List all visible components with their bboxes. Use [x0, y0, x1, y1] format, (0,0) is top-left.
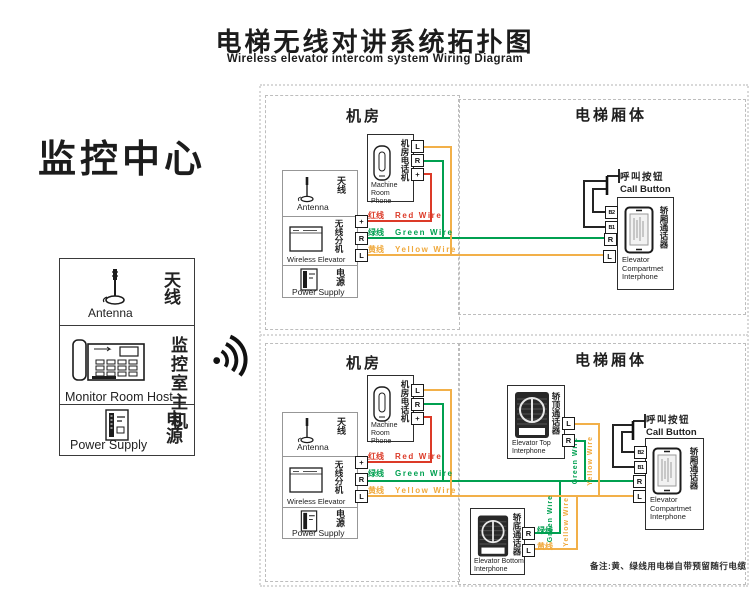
machine-room-phone-label-zh: 机房电话机: [400, 380, 410, 423]
terminal-l: L: [603, 250, 616, 263]
wireless-extension-label-zh: 无线分机: [334, 460, 344, 494]
system2-device-stack: 天线 Antenna 无线分机 Wireless Elevator: [282, 412, 358, 539]
monitor-antenna-label-en: Antenna: [88, 307, 133, 321]
call-wire-b2: [592, 188, 594, 213]
green-wire-label: 绿线Green Wire: [368, 227, 454, 238]
wireless-signal-icon: [208, 330, 254, 382]
green-wire: [584, 440, 586, 482]
system2-elevator-car-header: 电梯厢体: [575, 349, 647, 370]
antenna-label-en: Antenna: [297, 203, 329, 213]
antenna-label-zh: 天线: [335, 176, 346, 194]
call-wire-b1: [583, 226, 605, 228]
dotted-frame-top: [260, 84, 748, 86]
terminal-l: L: [355, 249, 368, 262]
terminal-plus: +: [355, 215, 368, 228]
wiring-diagram-canvas: 电梯无线对讲系统拓扑图 Wireless elevator intercom s…: [0, 0, 750, 589]
terminal-l: L: [355, 490, 368, 503]
power-label-zh: 电源: [334, 268, 345, 286]
compartment-interphone-icon: [624, 206, 654, 254]
call-button-label-en: Call Button: [620, 185, 671, 196]
monitor-power-label-en: Power Supply: [70, 438, 147, 452]
yellow-wire: [422, 389, 450, 391]
green-wire-label-zh: 绿线: [368, 469, 384, 478]
dotted-frame-right: [747, 86, 749, 585]
terminal-l: L: [411, 384, 424, 397]
green-wire-short-label: 绿线: [537, 525, 553, 536]
dotted-frame-left: [259, 86, 261, 585]
elevator-bottom-interphone: 轿底通话器 Elevator Bottom Interphone: [470, 508, 525, 575]
monitor-host-phone-icon: [70, 334, 148, 386]
system2-machine-room-phone: 机房电话机 Machine Room Phone: [367, 375, 414, 442]
machine-room-phone-label-en: Machine Room Phone: [371, 422, 411, 446]
dotted-frame-bottom: [260, 585, 748, 587]
page-subtitle: Wireless elevator intercom system Wiring…: [0, 53, 750, 65]
call-button-icon: [600, 164, 626, 198]
terminal-r: R: [604, 233, 617, 246]
elevator-bottom-interphone-label-zh: 轿底通话器: [512, 513, 523, 556]
antenna-icon: [100, 266, 130, 310]
red-wire-label-en: Red Wire: [395, 452, 442, 461]
terminal-r: R: [522, 527, 535, 540]
yellow-wire-label: 黄线Yellow Wire: [368, 485, 457, 496]
system2-antenna-cell: 天线 Antenna: [283, 413, 357, 457]
power-label-en: Power Supply: [292, 529, 344, 539]
call-wire-b2: [621, 431, 623, 453]
yellow-wire-label: 黄线Yellow Wire: [368, 244, 457, 255]
system1-elevator-car-frame: [458, 99, 746, 315]
green-wire-label-zh: 绿线: [368, 228, 384, 237]
green-wire: [422, 160, 442, 162]
yellow-wire: [450, 389, 452, 497]
terminal-r: R: [355, 232, 368, 245]
system1-antenna-cell: 天线 Antenna: [283, 171, 357, 217]
monitor-antenna-cell: 天线 Antenna: [60, 259, 194, 326]
yellow-wire-vertical-label: Yellow Wire: [563, 497, 570, 547]
system2-compartment-interphone: 轿厢通话器 Elevator Compartmet Interphone: [645, 438, 704, 530]
elevator-top-interphone-label-zh: 轿顶通话器: [550, 392, 561, 435]
yellow-wire: [573, 423, 598, 425]
yellow-wire-vertical-label: Yellow Wire: [587, 436, 594, 486]
yellow-wire-label-zh: 黄线: [368, 486, 384, 495]
red-wire-label: 红线Red Wire: [368, 210, 442, 221]
system1-device-stack: 天线 Antenna 无线分机 Wireless Elevator: [282, 170, 358, 298]
monitor-host-label-en: Monitor Room Host: [65, 390, 173, 404]
elevator-top-interphone: 轿顶通话器 Elevator Top Interphone: [507, 385, 565, 459]
red-wire-label: 红线Red Wire: [368, 451, 442, 462]
monitor-center-heading: 监控中心: [38, 128, 206, 183]
diagram-note: 备注:黄、绿线用电梯自带预留随行电缆: [590, 560, 746, 572]
power-label-en: Power Supply: [292, 288, 344, 298]
yellow-wire-short-label: 黄线: [537, 541, 553, 552]
machine-room-phone-label-en: Machine Room Phone: [371, 182, 411, 206]
green-wire-label-en: Green Wire: [395, 469, 454, 478]
green-wire: [559, 480, 561, 534]
wireless-extension-label-en: Wireless Elevator: [287, 256, 345, 265]
red-wire-label-zh: 红线: [368, 211, 384, 220]
monitor-host-cell: 监控室主机 Monitor Room Host: [60, 326, 194, 405]
terminal-l: L: [522, 544, 535, 557]
elevator-bottom-interphone-label-en: Elevator Bottom Interphone: [474, 558, 524, 574]
power-label-zh: 电源: [334, 509, 345, 527]
green-wire-label-en: Green Wire: [395, 228, 454, 237]
call-wire-b1: [612, 466, 636, 468]
yellow-wire: [576, 495, 578, 550]
system1-power-cell: 电源 Power Supply: [283, 266, 357, 299]
pit-speaker-icon: [477, 514, 509, 558]
elevator-top-interphone-label-en: Elevator Top Interphone: [512, 440, 558, 456]
machine-room-phone-label-zh: 机房电话机: [400, 139, 410, 182]
call-wire-b1: [612, 424, 614, 468]
monitor-host-label-zh: 监控室主机: [166, 336, 188, 398]
yellow-wire-label-en: Yellow Wire: [395, 486, 457, 495]
green-wire: [366, 480, 635, 482]
terminal-l: L: [411, 140, 424, 153]
wireless-extension-icon: [289, 226, 323, 252]
terminal-b2: B2: [605, 206, 618, 219]
system1-elevator-car-header: 电梯厢体: [575, 104, 647, 125]
terminal-plus: +: [355, 456, 368, 469]
handset-icon: [372, 386, 392, 424]
compartment-interphone-icon: [652, 447, 682, 495]
terminal-r: R: [355, 473, 368, 486]
handset-icon: [372, 145, 392, 183]
system1-compartment-interphone: 轿厢通话器 Elevator Compartmet Interphone: [617, 197, 674, 290]
terminal-b1: B1: [634, 461, 647, 474]
system1-machine-room-header: 机房: [346, 105, 382, 126]
system2-wireless-cell: 无线分机 Wireless Elevator: [283, 457, 357, 508]
system1-machine-room-phone: 机房电话机 Machine Room Phone: [367, 134, 414, 202]
call-button-label-zh: 呼叫按钮: [646, 416, 690, 427]
system2-machine-room-header: 机房: [346, 352, 382, 373]
yellow-wire: [422, 146, 450, 148]
compartment-interphone-label-zh: 轿厢通话器: [658, 206, 669, 249]
call-button-label-zh: 呼叫按钮: [620, 173, 664, 184]
call-wire-b2: [592, 211, 605, 213]
power-supply-icon: [105, 409, 129, 441]
terminal-b2: B2: [634, 446, 647, 459]
red-wire-label-en: Red Wire: [395, 211, 442, 220]
monitor-power-label-zh: 电源: [162, 410, 182, 444]
dotted-frame-middle: [260, 334, 748, 336]
terminal-plus: +: [411, 412, 424, 425]
yellow-wire: [598, 423, 600, 497]
system2-power-cell: 电源 Power Supply: [283, 508, 357, 540]
green-wire: [422, 403, 442, 405]
system1-wireless-cell: 无线分机 Wireless Elevator: [283, 217, 357, 266]
yellow-wire: [450, 146, 452, 256]
call-button-icon: [626, 409, 652, 443]
terminal-r: R: [562, 434, 575, 447]
wireless-extension-icon: [289, 467, 323, 493]
monitor-power-cell: 电源 Power Supply: [60, 405, 194, 454]
terminal-r: R: [411, 398, 424, 411]
monitor-antenna-label-zh: 天线: [160, 271, 180, 305]
compartment-interphone-label-en: Elevator Compartmet Interphone: [650, 496, 702, 522]
compartment-interphone-label-zh: 轿厢通话器: [688, 447, 699, 490]
terminal-plus: +: [411, 168, 424, 181]
compartment-interphone-label-en: Elevator Compartmet Interphone: [622, 256, 672, 282]
antenna-icon: [296, 175, 318, 205]
yellow-wire-label-zh: 黄线: [368, 245, 384, 254]
wireless-extension-label-en: Wireless Elevator: [287, 498, 345, 507]
roof-speaker-icon: [514, 391, 550, 439]
terminal-r: R: [411, 154, 424, 167]
terminal-l: L: [562, 417, 575, 430]
terminal-l: L: [633, 490, 646, 503]
call-wire-b1: [583, 180, 585, 228]
terminal-r: R: [633, 475, 646, 488]
wireless-extension-label-zh: 无线分机: [334, 219, 344, 253]
antenna-label-zh: 天线: [335, 417, 346, 435]
antenna-label-en: Antenna: [297, 443, 329, 453]
monitor-center-panel: 天线 Antenna 监控室主机 Monitor: [59, 258, 195, 456]
yellow-wire-label-en: Yellow Wire: [395, 245, 457, 254]
green-wire-label: 绿线Green Wire: [368, 468, 454, 479]
red-wire-label-zh: 红线: [368, 452, 384, 461]
